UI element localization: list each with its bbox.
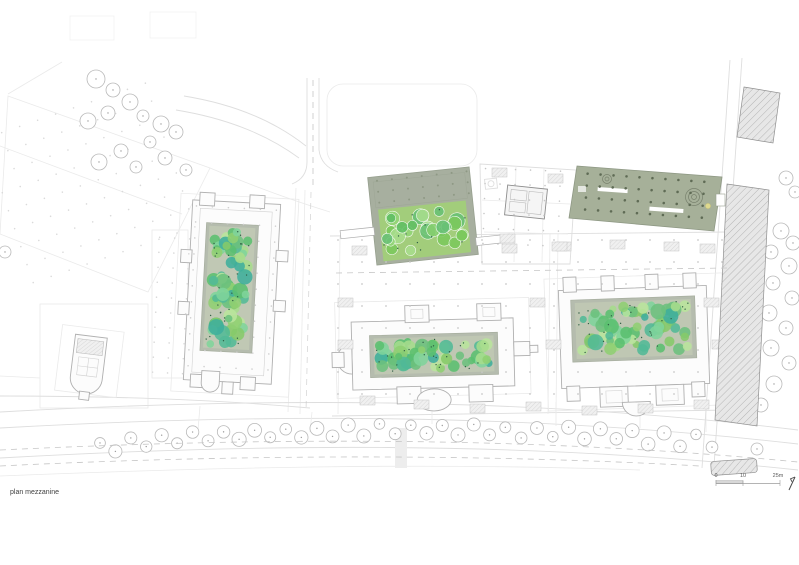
courtyard-garden: [575, 299, 693, 359]
roof-ornament-icon: [705, 203, 710, 208]
plan-title: plan mezzanine: [10, 489, 59, 496]
plaza-ramp-west: [340, 227, 375, 239]
scale-tick-25m: 25m: [773, 473, 784, 479]
stair-core: [76, 339, 104, 356]
courtyard-garden: [203, 226, 255, 350]
olive-roof: [569, 166, 725, 231]
mezzanine-core-plan: [505, 185, 548, 219]
courtyard-garden: [374, 335, 495, 374]
plaza-garden: [378, 200, 471, 261]
site-plan-canvas: plan mezzanine 0 10 25m: [0, 0, 799, 565]
pavilion: [54, 325, 124, 404]
scale-tick-0: 0: [714, 473, 717, 479]
site-plan: plan mezzanine 0 10 25m: [0, 0, 799, 565]
plaza-kiosk: [485, 178, 498, 189]
scale-tick-10: 10: [740, 473, 746, 479]
north-arrow-icon: [789, 477, 795, 490]
